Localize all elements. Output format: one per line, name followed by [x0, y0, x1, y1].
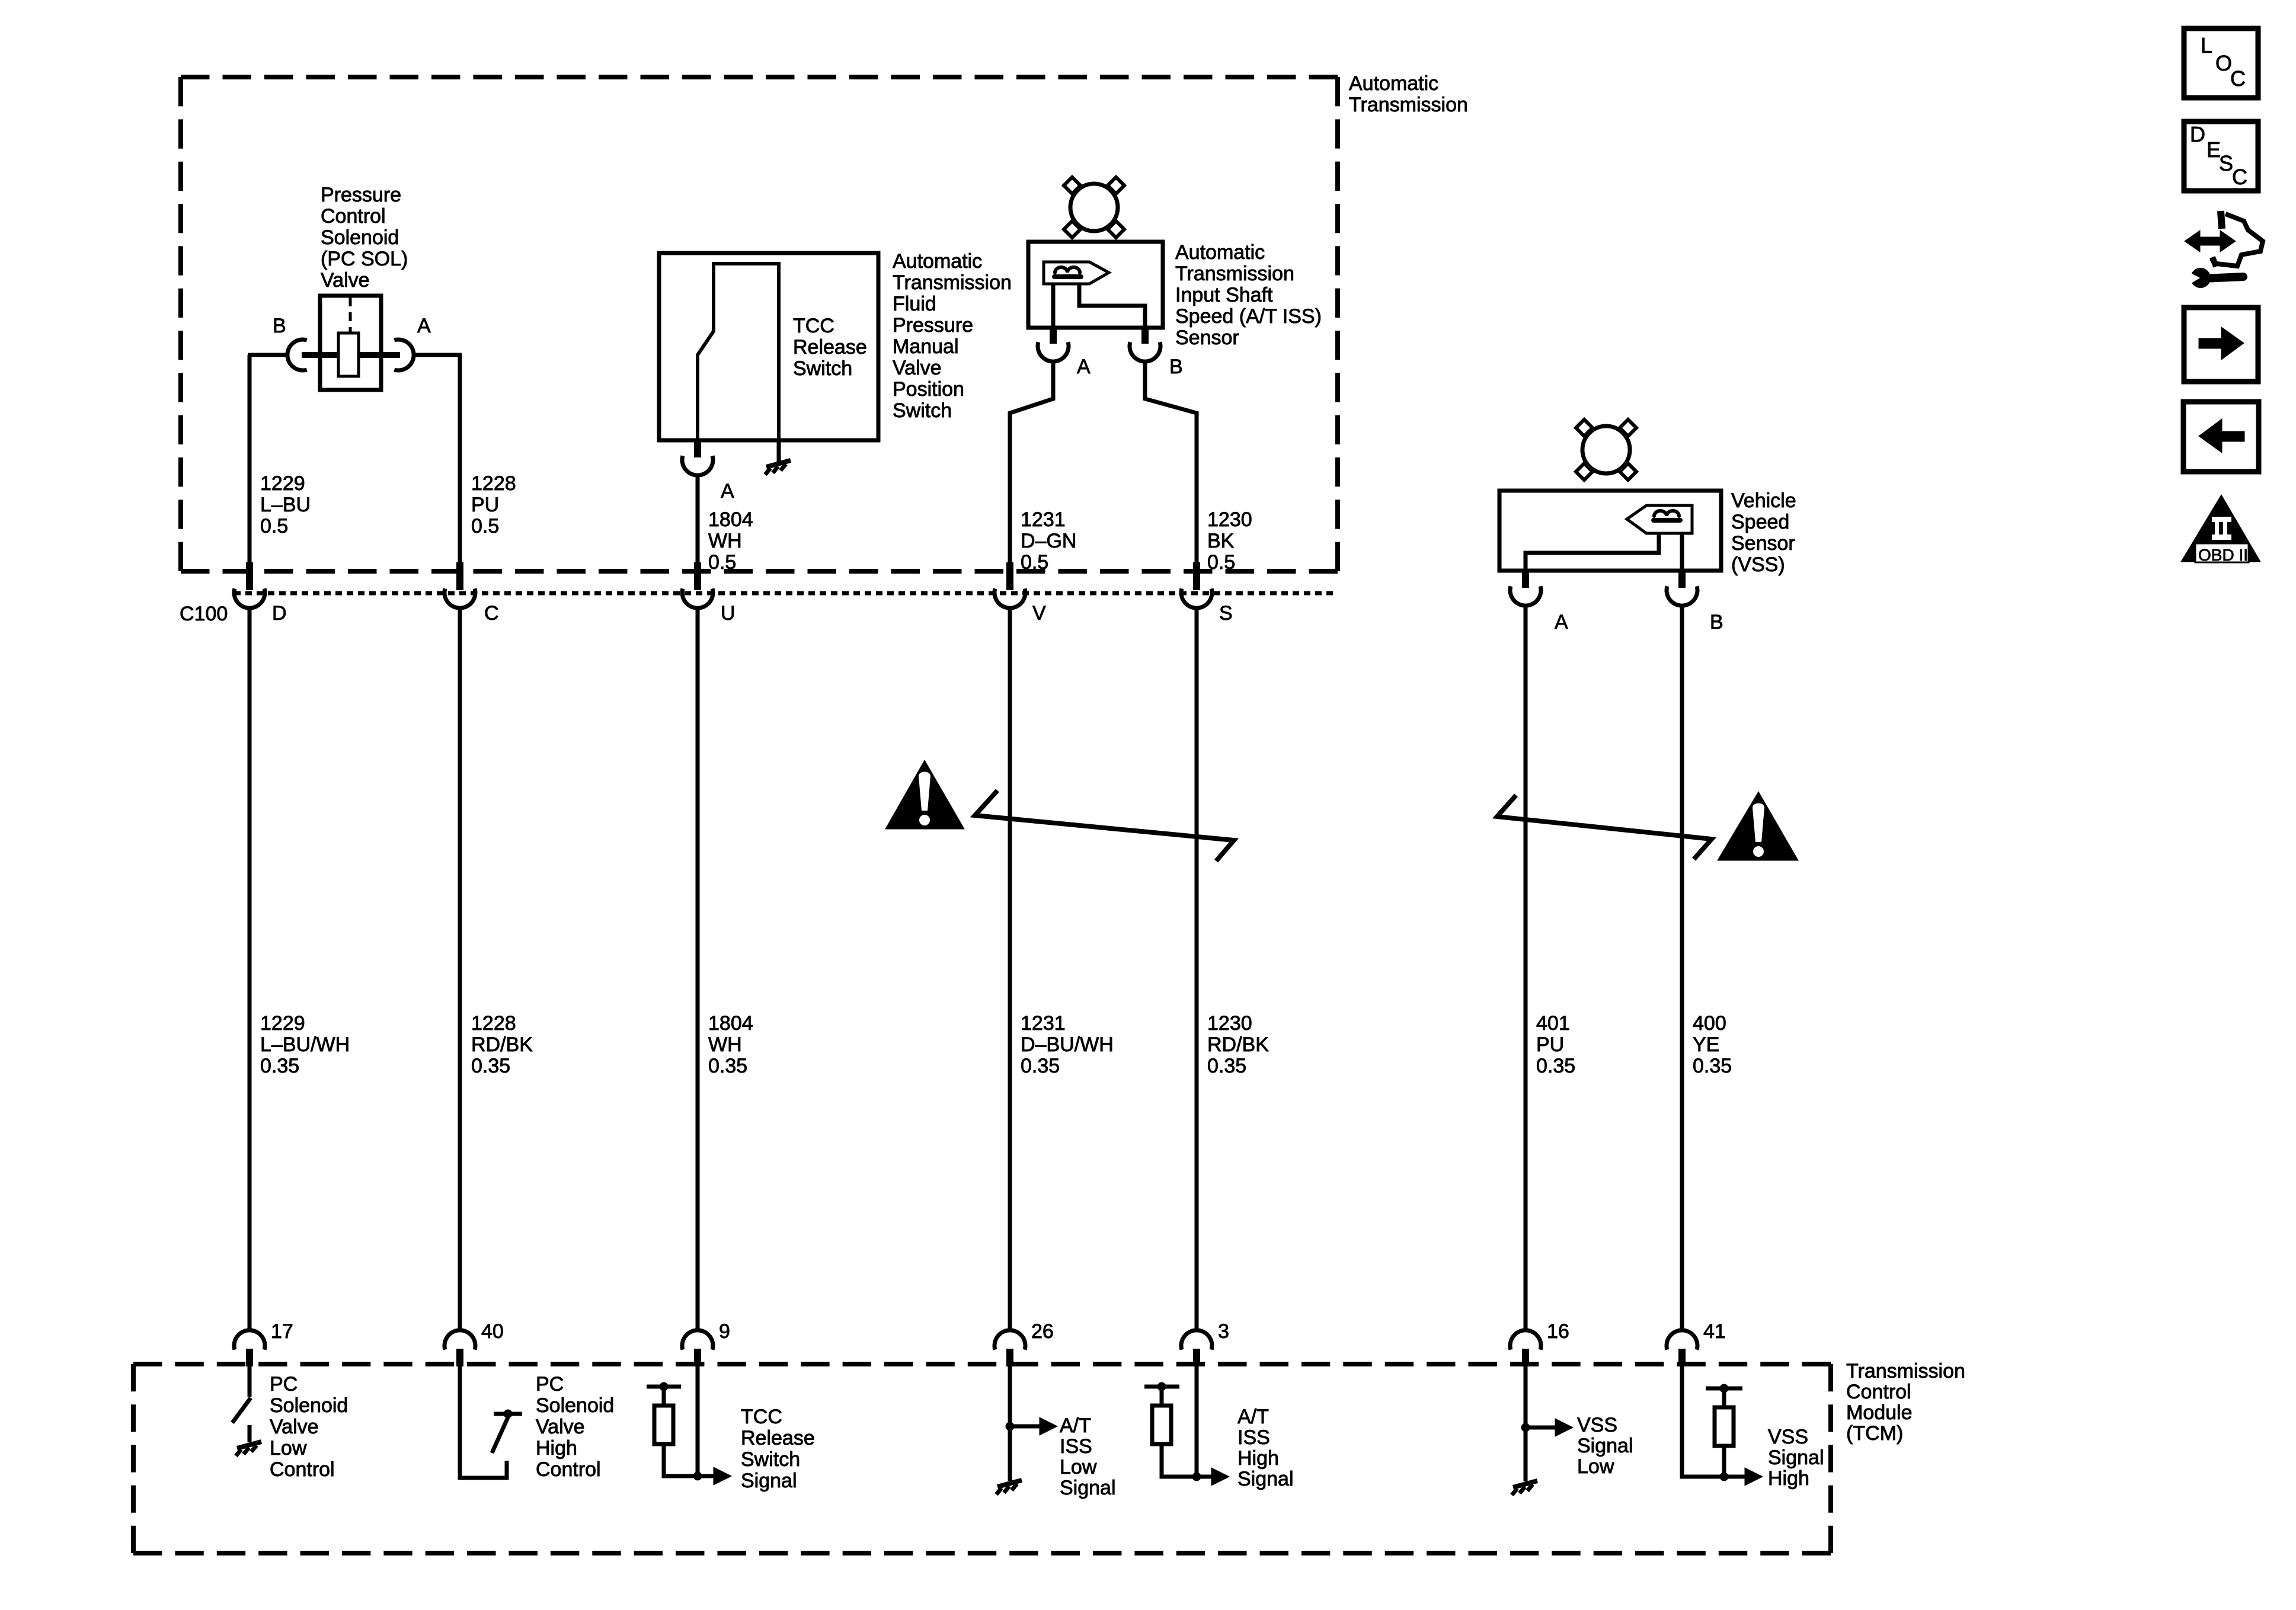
svg-text:0.35: 0.35 — [260, 1055, 299, 1077]
svg-text:(VSS): (VSS) — [1731, 553, 1785, 576]
svg-text:Valve: Valve — [321, 269, 370, 292]
svg-text:Signal: Signal — [1060, 1477, 1116, 1499]
svg-text:1230: 1230 — [1207, 508, 1252, 531]
svg-text:1230: 1230 — [1207, 1012, 1252, 1035]
svg-text:1804: 1804 — [708, 1012, 753, 1035]
svg-text:Control: Control — [1846, 1381, 1911, 1403]
svg-text:0.5: 0.5 — [260, 515, 288, 537]
svg-text:Sensor: Sensor — [1731, 532, 1795, 555]
svg-text:B: B — [1710, 611, 1723, 633]
svg-text:Low: Low — [1060, 1456, 1097, 1478]
svg-text:0.5: 0.5 — [471, 515, 499, 537]
svg-text:Transmission: Transmission — [1846, 1360, 1965, 1382]
svg-text:Solenoid: Solenoid — [536, 1394, 614, 1417]
svg-text:L–BU: L–BU — [260, 494, 311, 516]
svg-text:C: C — [484, 602, 499, 625]
svg-text:1804: 1804 — [708, 508, 753, 531]
svg-text:Valve: Valve — [536, 1416, 585, 1438]
svg-text:1228: 1228 — [471, 1012, 516, 1035]
svg-text:High: High — [1768, 1467, 1809, 1490]
svg-text:(PC SOL): (PC SOL) — [321, 248, 408, 270]
svg-text:17: 17 — [271, 1320, 293, 1343]
svg-text:S: S — [2219, 151, 2233, 175]
svg-text:Solenoid: Solenoid — [270, 1394, 348, 1417]
svg-text:Signal: Signal — [1768, 1446, 1824, 1469]
svg-text:Transmission: Transmission — [893, 271, 1012, 294]
svg-text:Automatic: Automatic — [1349, 72, 1438, 95]
svg-text:Transmission: Transmission — [1175, 263, 1294, 285]
svg-text:B: B — [1169, 356, 1183, 378]
svg-text:1229: 1229 — [260, 1012, 305, 1035]
svg-text:Fluid: Fluid — [893, 293, 936, 315]
svg-text:U: U — [721, 602, 736, 625]
svg-text:400: 400 — [1693, 1012, 1726, 1035]
svg-text:A: A — [721, 480, 734, 502]
svg-text:1231: 1231 — [1021, 508, 1066, 531]
svg-text:Speed: Speed — [1731, 511, 1789, 533]
svg-text:40: 40 — [481, 1320, 504, 1343]
svg-text:Release: Release — [741, 1427, 815, 1449]
svg-text:26: 26 — [1031, 1320, 1054, 1343]
svg-text:Input Shaft: Input Shaft — [1175, 284, 1273, 306]
svg-text:Low: Low — [1577, 1455, 1614, 1478]
svg-text:Automatic: Automatic — [1175, 241, 1265, 264]
svg-text:PC: PC — [536, 1373, 564, 1395]
svg-text:ISS: ISS — [1060, 1435, 1092, 1458]
svg-text:9: 9 — [719, 1320, 730, 1343]
svg-text:High: High — [1237, 1447, 1279, 1470]
svg-text:Control: Control — [536, 1458, 601, 1481]
svg-text:High: High — [536, 1437, 577, 1459]
svg-text:C: C — [2230, 66, 2246, 91]
svg-text:Signal: Signal — [741, 1470, 797, 1492]
svg-text:VSS: VSS — [1768, 1426, 1808, 1448]
svg-text:A: A — [417, 315, 431, 337]
svg-text:Vehicle: Vehicle — [1731, 489, 1796, 512]
svg-text:Release: Release — [793, 336, 867, 359]
svg-text:Valve: Valve — [270, 1416, 319, 1438]
svg-text:A: A — [1077, 356, 1091, 378]
svg-text:PU: PU — [1536, 1033, 1564, 1056]
svg-text:41: 41 — [1703, 1320, 1726, 1343]
svg-text:Sensor: Sensor — [1175, 327, 1239, 349]
svg-text:B: B — [273, 315, 286, 337]
svg-text:O: O — [2215, 51, 2232, 75]
svg-text:0.5: 0.5 — [1021, 551, 1048, 574]
svg-text:Automatic: Automatic — [893, 250, 982, 273]
svg-text:0.35: 0.35 — [708, 1055, 747, 1077]
svg-text:VSS: VSS — [1577, 1414, 1617, 1436]
svg-text:0.5: 0.5 — [1207, 551, 1235, 574]
svg-text:L: L — [2201, 33, 2212, 57]
svg-text:0.35: 0.35 — [471, 1055, 510, 1077]
svg-text:Low: Low — [270, 1437, 307, 1459]
svg-text:Valve: Valve — [893, 357, 942, 379]
svg-text:1229: 1229 — [260, 472, 305, 495]
svg-text:D–BU/WH: D–BU/WH — [1021, 1033, 1114, 1056]
svg-text:PC: PC — [270, 1373, 298, 1395]
svg-text:Switch: Switch — [793, 357, 852, 380]
svg-text:Signal: Signal — [1577, 1435, 1633, 1457]
svg-text:Module: Module — [1846, 1401, 1913, 1424]
svg-text:D–GN: D–GN — [1021, 530, 1076, 552]
svg-text:1231: 1231 — [1021, 1012, 1066, 1035]
svg-text:PU: PU — [471, 494, 499, 516]
svg-text:L–BU/WH: L–BU/WH — [260, 1033, 350, 1056]
svg-text:Pressure: Pressure — [893, 314, 973, 337]
svg-text:Manual: Manual — [893, 335, 959, 358]
svg-text:0.35: 0.35 — [1693, 1055, 1732, 1077]
svg-text:Signal: Signal — [1237, 1468, 1294, 1490]
svg-text:Solenoid: Solenoid — [321, 226, 399, 249]
svg-text:TCC: TCC — [793, 315, 834, 337]
svg-text:A/T: A/T — [1237, 1406, 1269, 1428]
svg-text:1228: 1228 — [471, 472, 516, 495]
svg-text:0.35: 0.35 — [1536, 1055, 1575, 1077]
svg-text:0.35: 0.35 — [1207, 1055, 1246, 1077]
svg-text:D: D — [2190, 122, 2205, 146]
svg-text:OBD II: OBD II — [2198, 546, 2248, 564]
svg-text:A/T: A/T — [1060, 1414, 1091, 1437]
svg-text:BK: BK — [1207, 530, 1235, 552]
svg-text:V: V — [1032, 602, 1046, 625]
svg-text:WH: WH — [708, 530, 742, 552]
svg-text:(TCM): (TCM) — [1846, 1422, 1903, 1445]
svg-text:RD/BK: RD/BK — [1207, 1033, 1269, 1056]
svg-text:ISS: ISS — [1237, 1426, 1270, 1449]
svg-text:RD/BK: RD/BK — [471, 1033, 533, 1056]
svg-text:C: C — [2232, 165, 2247, 189]
svg-text:A: A — [1555, 611, 1568, 633]
svg-text:Control: Control — [270, 1458, 335, 1481]
svg-text:Pressure: Pressure — [321, 184, 401, 206]
svg-text:Control: Control — [321, 205, 386, 228]
svg-text:Transmission: Transmission — [1349, 94, 1468, 116]
svg-text:Switch: Switch — [893, 399, 952, 422]
svg-text:Switch: Switch — [741, 1448, 800, 1471]
svg-text:16: 16 — [1547, 1320, 1569, 1343]
svg-text:S: S — [1219, 602, 1233, 625]
svg-text:WH: WH — [708, 1033, 742, 1056]
svg-text:TCC: TCC — [741, 1406, 782, 1428]
svg-text:0.5: 0.5 — [708, 551, 736, 574]
svg-text:0.35: 0.35 — [1021, 1055, 1060, 1077]
svg-text:YE: YE — [1693, 1033, 1719, 1056]
svg-text:C100: C100 — [180, 603, 228, 625]
svg-text:3: 3 — [1218, 1320, 1229, 1343]
svg-text:Speed (A/T ISS): Speed (A/T ISS) — [1175, 305, 1322, 328]
svg-text:401: 401 — [1536, 1012, 1570, 1035]
svg-text:D: D — [272, 602, 287, 625]
svg-text:Position: Position — [893, 378, 964, 401]
